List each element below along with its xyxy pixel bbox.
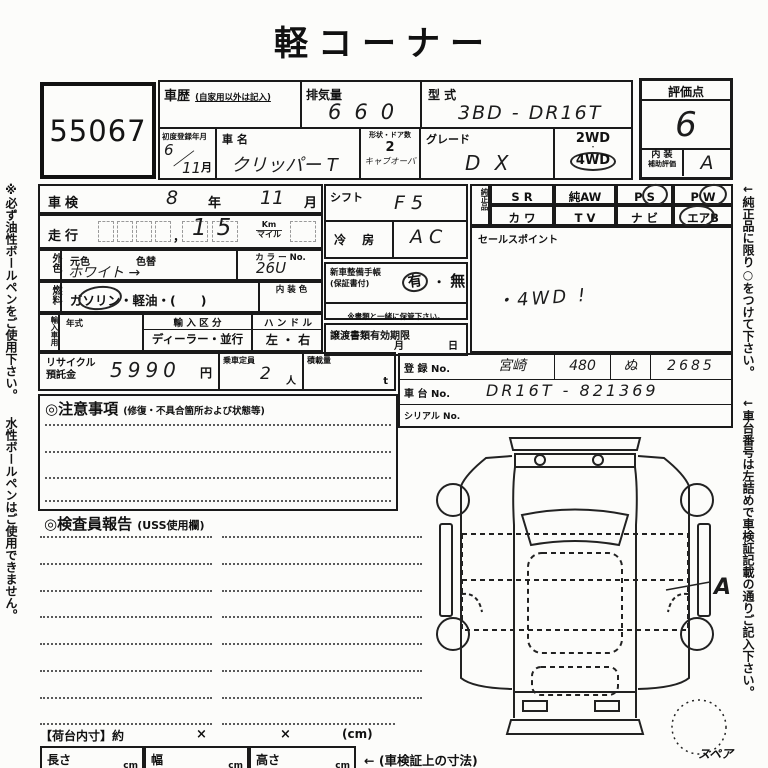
spare-label: スペア: [698, 745, 733, 762]
right-note-1: ←純正品に限り○をつけて下さい。: [741, 182, 755, 378]
fuel-row: 燃料 ガソリン・軽油・( ) 内 装 色: [38, 281, 323, 313]
car-name-value: クリッパー T: [231, 151, 338, 177]
dot-separator: ・: [555, 146, 631, 149]
dotted-line: [222, 616, 422, 618]
shift-value: F 5: [394, 192, 423, 214]
lot-number: 55067: [49, 114, 146, 148]
registration-kana-cell: ぬ: [610, 355, 650, 379]
right-bed-panel: [698, 524, 710, 616]
left-note-1: ※必ず油性ボールペンをご使用下さい。: [4, 183, 18, 401]
dotted-line: [40, 643, 212, 645]
interior-sub-label: 補助評価: [642, 161, 682, 169]
booklet-no-option: 無: [450, 272, 465, 290]
booklet-main: 新車整備手帳 (保証書付) 有 ・ 無: [326, 264, 466, 302]
chassis-label: 車 台 No.: [404, 385, 450, 400]
shape-doors-label: 形状・ドア数: [363, 130, 417, 140]
equipment-label: 純正品: [470, 184, 490, 226]
interior-score-value: A: [701, 152, 714, 174]
registration-area-cell: 宮崎: [470, 355, 554, 379]
registration-number-cell: 2685: [650, 355, 731, 379]
headlight-right: [593, 455, 603, 465]
booklet-sub-label: (保証書付): [330, 279, 381, 289]
score-label: 評価点: [668, 85, 704, 99]
left-note-2: 水性ボールペンはご使用できません。: [4, 417, 18, 621]
equipment-aw: 純AW: [554, 184, 616, 205]
transfer-day: 日: [448, 337, 458, 352]
dotted-line: [222, 643, 422, 645]
registration-number: 2685: [667, 358, 715, 374]
year-unit: 年: [208, 192, 221, 211]
equipment-navi-label: ナ ビ: [631, 211, 658, 225]
load-unit: t: [383, 376, 388, 387]
bed-floor-dashed: [532, 667, 618, 695]
history-cell: 車歴 (自家用以外は記入): [158, 80, 302, 129]
shift-ac-box: シフト F 5 冷 房 A C: [324, 184, 468, 259]
digit-box: [155, 221, 171, 242]
ac-label-cell: 冷 房: [326, 222, 394, 257]
cm-note: (cm): [342, 727, 373, 741]
dotted-line: [40, 590, 212, 592]
registration-label-cell: 登 録 No.: [400, 355, 470, 379]
bed-projection-dashed: [462, 534, 688, 630]
width-cell: 幅 cm: [144, 746, 249, 768]
sales-point-value: ・4WD !: [495, 281, 589, 313]
grade-cell: グレード D X: [419, 127, 555, 180]
recycle-row: リサイクル 預託金 5990 円 乗車定員 2 人 積載量 t: [38, 352, 396, 391]
dotted-line: [45, 477, 391, 479]
model-code-label: 型 式: [428, 88, 456, 102]
front-panel: [515, 454, 635, 467]
recycle-label-line1: リサイクル: [46, 358, 96, 370]
car-damage-diagram: A: [428, 430, 744, 760]
dotted-line: [40, 616, 212, 618]
ac-cell: 冷 房 A C: [326, 222, 466, 257]
drive-4wd-label: 4WD: [570, 152, 616, 171]
sales-point-box: セールスポイント ・4WD !: [470, 226, 733, 353]
attention-box: ◎注意事項 (修復・不具合箇所および状態等): [38, 394, 398, 511]
equipment-airbag: エアB: [673, 205, 733, 226]
digit-box: [98, 221, 114, 242]
dotted-line: [40, 563, 212, 565]
dotted-line: [222, 670, 422, 672]
person-unit: 人: [286, 372, 296, 387]
equipment-ps-label: P S: [634, 190, 655, 204]
kei-auction-sheet: 軽コーナー ※必ず油性ボールペンをご使用下さい。水性ボールペンはご使用できません…: [0, 0, 768, 768]
ac-value: A C: [410, 226, 442, 248]
exterior-color-label: 外色: [40, 251, 62, 279]
rear-bumper: [507, 720, 643, 734]
shaken-year-value: 8: [166, 187, 178, 209]
color-no-cell: カ ラ ー No. 26U: [236, 251, 323, 279]
shaken-month-unit: 月: [304, 192, 317, 211]
score-value-area: 6: [642, 101, 730, 148]
attention-title: ◎注意事項: [45, 400, 118, 418]
import-row: 輸入車用 年式 輸 入 区 分 ディーラー・並行 ハ ン ド ル 左 ・ 右: [38, 313, 323, 352]
page-title: 軽コーナー: [0, 16, 768, 65]
equipment-pw: P W: [673, 184, 733, 205]
import-class-label: 輸 入 区 分: [144, 315, 251, 330]
capacity-label: 乗車定員: [223, 355, 255, 366]
shaken-label: 車検: [48, 192, 82, 211]
dotted-line: [40, 536, 212, 538]
mileage-row: 走行 ， 15 Km マイル: [38, 214, 323, 249]
dotted-line: [222, 536, 422, 538]
body-right-line: [635, 467, 637, 718]
score-header: 評価点: [642, 81, 730, 101]
mileage-value: 15: [192, 215, 241, 241]
inspector-header: ◎検査員報告 (USS使用欄): [44, 513, 205, 534]
exterior-color-row: 外色 元色 色替 ホワイト → カ ラ ー No. 26U: [38, 249, 323, 281]
grade-label: グレード: [426, 131, 548, 147]
equipment-sr-label: S R: [511, 190, 532, 204]
booklet-labels: 新車整備手帳 (保証書付): [330, 268, 381, 289]
capacity-value: 2: [260, 364, 271, 384]
dotted-line: [222, 590, 422, 592]
digit-box: [290, 221, 316, 242]
lot-number-box: 55067: [40, 82, 156, 179]
dotted-line: [45, 500, 391, 502]
left-arch-dashed: [462, 594, 482, 612]
model-code-value: 3BD - DR16T: [458, 102, 602, 124]
equipment-tv: T V: [554, 205, 616, 226]
color-value: ホワイト →: [68, 262, 140, 282]
unit-mile: マイル: [256, 231, 282, 240]
body-left-line: [513, 467, 515, 718]
digit-box: [136, 221, 152, 242]
load-cell: 積載量 t: [302, 354, 394, 389]
left-rear-wheel: [437, 618, 469, 650]
digit-box: [117, 221, 133, 242]
times-mark: ×: [280, 727, 291, 742]
bed-dims-label: 【荷台内寸】約: [40, 727, 124, 744]
shift-cell: シフト F 5: [326, 186, 466, 222]
times-mark: ×: [196, 727, 207, 742]
history-note: (自家用以外は記入): [195, 93, 271, 103]
shaken-row: 車検 8 年 11 月: [38, 184, 323, 214]
color-no-value: 26U: [256, 259, 286, 277]
left-side-outline: [461, 456, 512, 689]
sales-point-label: セールスポイント: [478, 231, 558, 246]
fuel-options: ガソリン・軽油・( ): [70, 290, 206, 309]
tail-light-right: [595, 701, 619, 711]
dotted-line: [40, 670, 212, 672]
first-registration-year: 6: [164, 141, 174, 159]
length-cell: 長さ cm: [40, 746, 144, 768]
history-label: 車歴: [164, 89, 190, 104]
car-name-label: 車 名: [222, 131, 354, 147]
dims-note: ← (車検証上の寸法): [364, 750, 478, 768]
shaken-month-value: 11: [260, 187, 284, 209]
month-unit: 月: [201, 159, 212, 175]
booklet-box: 新車整備手帳 (保証書付) 有 ・ 無 ※書類と一緒に保管下さい。: [324, 262, 468, 320]
interior-score-value-area: A: [684, 150, 730, 176]
import-class-cell: 輸 入 区 分 ディーラー・並行: [142, 315, 251, 350]
inspector-subtitle: (USS使用欄): [137, 519, 204, 532]
attention-header: ◎注意事項 (修復・不具合箇所および状態等): [45, 398, 265, 419]
booklet-option-separator: ・: [433, 275, 445, 289]
windshield: [522, 510, 628, 546]
registration-box: 登 録 No. 宮崎 480 ぬ 2685 車 台 No. DR16T - 82…: [398, 353, 733, 428]
serial-label: シリアル No.: [404, 409, 460, 422]
registration-class-cell: 480: [554, 355, 610, 379]
equipment-sr: S R: [490, 184, 554, 205]
headlight-left: [535, 455, 545, 465]
cm-unit: cm: [228, 761, 243, 768]
dotted-line: [40, 723, 212, 725]
yen-unit: 円: [200, 364, 212, 381]
chassis-value: DR16T - 821369: [486, 381, 659, 400]
doors-value: 2: [363, 140, 417, 155]
front-bumper: [510, 438, 640, 450]
year-type-label: 年式: [66, 317, 83, 329]
displacement-cell: 排気量 660: [300, 80, 422, 129]
handle-cell: ハ ン ド ル 左 ・ 右: [251, 315, 323, 350]
serial-row: シリアル No.: [400, 405, 731, 426]
recycle-label: リサイクル 預託金: [46, 358, 96, 382]
recycle-value: 5990: [110, 358, 181, 382]
registration-row: 登 録 No. 宮崎 480 ぬ 2685: [400, 355, 731, 380]
booklet-yes-option: 有: [401, 270, 430, 294]
score-value: 6: [675, 105, 697, 145]
dotted-line: [222, 563, 422, 565]
equipment-kawa-label: カ ワ: [508, 211, 535, 225]
handle-options: 左 ・ 右: [253, 330, 323, 348]
booklet-note-strip: ※書類と一緒に保管下さい。: [326, 302, 466, 318]
shift-label: シフト: [330, 189, 363, 205]
registration-area: 宮崎: [498, 358, 526, 374]
import-class-options: ディーラー・並行: [144, 330, 251, 347]
booklet-options: 有 ・ 無: [402, 270, 465, 292]
handle-label: ハ ン ド ル: [253, 315, 323, 330]
car-name-cell: 車 名 クリッパー T: [215, 127, 361, 180]
fuel-label: 燃料: [40, 283, 62, 311]
first-registration-month: 11: [182, 159, 201, 177]
left-bed-panel: [440, 524, 452, 616]
shape-doors-cell: 形状・ドア数 2 キャブオーバ: [359, 127, 421, 180]
dotted-line: [222, 697, 422, 699]
attention-subtitle: (修復・不具合箇所および状態等): [123, 406, 265, 417]
left-margin-note: ※必ず油性ボールペンをご使用下さい。水性ボールペンはご使用できません。: [5, 183, 17, 761]
booklet-note: ※書類と一緒に保管下さい。: [347, 312, 444, 321]
equipment-ps: P S: [616, 184, 673, 205]
interior-color-cell: 内 装 色: [258, 283, 323, 311]
score-box: 評価点 6 内 装 補助評価 A: [639, 78, 733, 180]
first-registration-cell: 初度登録年月 6 ／ 11 月: [158, 127, 217, 180]
registration-label: 登 録 No.: [404, 360, 450, 375]
ac-label: 冷 房: [334, 231, 380, 248]
recycle-label-line2: 預託金: [46, 370, 96, 382]
load-label: 積載量: [307, 355, 331, 366]
dotted-line: [222, 723, 395, 725]
width-label: 幅: [151, 751, 163, 768]
left-front-wheel: [437, 484, 469, 516]
height-cell: 高さ cm: [249, 746, 356, 768]
capacity-cell: 乗車定員 2 人: [218, 354, 302, 389]
mileage-label: 走行: [48, 225, 82, 244]
height-label: 高さ: [256, 751, 280, 768]
equipment-tv-label: T V: [575, 211, 596, 225]
registration-kana: ぬ: [624, 358, 638, 374]
cm-unit: cm: [335, 761, 350, 768]
grade-value: D X: [465, 151, 512, 175]
length-label: 長さ: [47, 751, 71, 768]
import-label: 輸入車用: [40, 315, 60, 350]
displacement-value: 660: [328, 100, 407, 124]
interior-score-row: 内 装 補助評価 A: [642, 148, 730, 176]
transfer-month: 月: [394, 337, 404, 352]
mileage-unit-stack: Km マイル: [256, 221, 282, 240]
dotted-line: [45, 424, 391, 426]
booklet-label: 新車整備手帳: [330, 268, 381, 279]
right-arch-dashed: [668, 594, 688, 612]
right-front-wheel: [681, 484, 713, 516]
model-code-cell: 型 式 3BD - DR16T: [420, 80, 633, 129]
cm-unit: cm: [123, 761, 138, 768]
body-type-value: キャブオーバ: [363, 155, 417, 167]
equipment-kawa: カ ワ: [490, 205, 554, 226]
interior-color-label: 内 装 色: [260, 283, 323, 295]
equipment-airbag-label: エアB: [687, 211, 719, 225]
damage-annotation: A: [712, 575, 731, 600]
registration-class: 480: [569, 358, 596, 374]
equipment-pw-label: P W: [690, 190, 715, 204]
equipment-navi: ナ ビ: [616, 205, 673, 226]
drive-type-cell: 2WD ・ 4WD: [553, 127, 633, 180]
right-rear-wheel: [681, 618, 713, 650]
right-side-outline: [638, 456, 689, 689]
dotted-line: [45, 451, 391, 453]
tail-light-left: [523, 701, 547, 711]
transfer-box: 譲渡書類有効期限 月 日: [324, 323, 468, 356]
inspector-title: ◎検査員報告: [44, 515, 132, 533]
dotted-line: [40, 697, 212, 699]
equipment-aw-label: 純AW: [569, 190, 602, 204]
interior-score-labels: 内 装 補助評価: [642, 150, 684, 176]
chassis-row: 車 台 No. DR16T - 821369: [400, 380, 731, 405]
cab-interior-dashed: [528, 553, 622, 653]
